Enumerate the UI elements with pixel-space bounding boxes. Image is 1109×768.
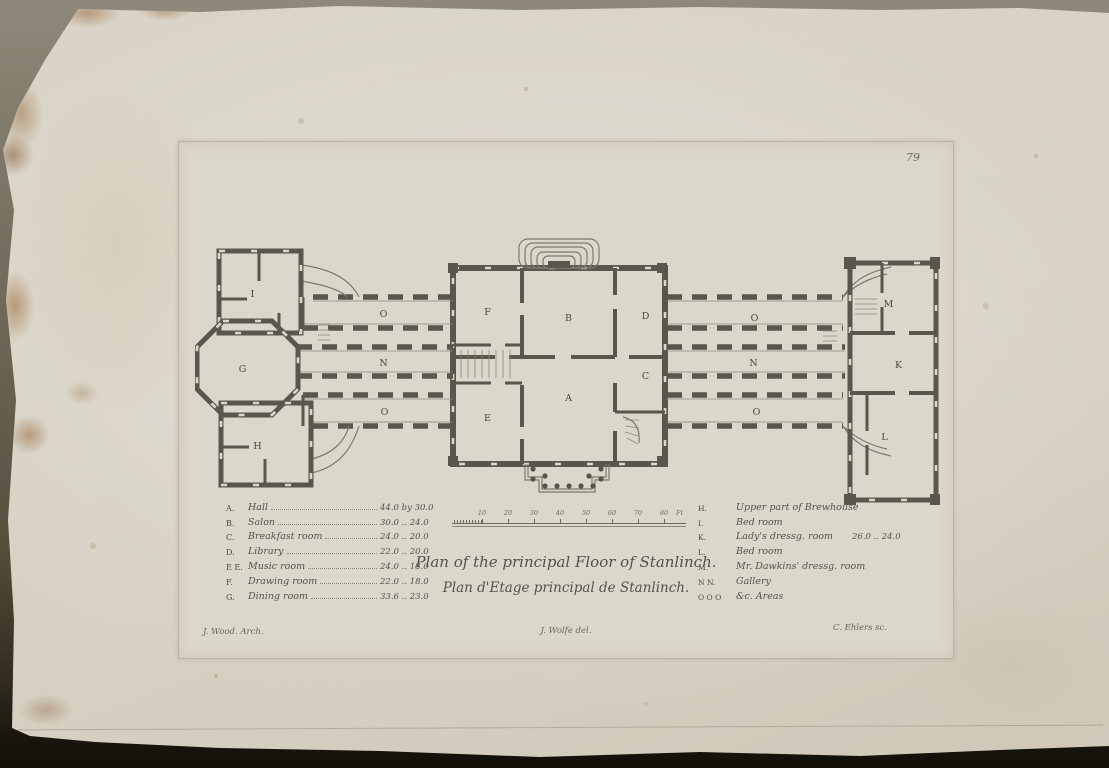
photo-backdrop: 79: [0, 0, 1109, 768]
foxing-stain: [0, 66, 52, 162]
scale-tick-label: 20: [504, 509, 512, 517]
southwest-quadrant-wall: [311, 426, 359, 473]
plate-title-french: Plan d'Etage principal de Stanlinch.: [376, 580, 756, 596]
corner-pier: [657, 263, 667, 273]
legend-name: Lady's dressg. room: [736, 531, 833, 542]
scale-bar: 10 20 30 40 50 60 70 80 Ft: [452, 509, 692, 533]
west-corridor-lines: [297, 301, 453, 422]
fold-crease: [18, 725, 1103, 731]
plate-mark: 79: [178, 141, 954, 659]
corridor-label: O: [753, 407, 762, 418]
dotted-leader: [311, 590, 377, 599]
plate-number: 79: [906, 151, 920, 164]
room-label: G: [239, 364, 248, 375]
foxing-stain: [0, 126, 42, 184]
room-label: K: [895, 360, 903, 371]
legend-row: B.Salon30.0 .. 24.0: [226, 513, 444, 528]
corner-turret: [930, 494, 940, 505]
foxing-stain: [0, 258, 42, 354]
room-label: E: [484, 413, 492, 424]
dotted-leader: [287, 545, 377, 554]
plate-title-english: Plan of the principal Floor of Stanlinch…: [376, 553, 756, 571]
scale-tick-label: 60: [608, 509, 616, 517]
legend-name: Library: [248, 546, 284, 557]
room-label: I: [251, 289, 256, 300]
scale-tick-label: 40: [556, 509, 564, 517]
legend-letter: C.: [226, 533, 248, 542]
foxing-stain: [40, 0, 135, 34]
northwest-quadrant-wall: [301, 265, 359, 297]
room-label: D: [642, 311, 651, 322]
east-block-partitions: [850, 333, 936, 393]
scale-unit: Ft: [676, 509, 683, 517]
architect-signature: J. Wood. Arch.: [203, 627, 264, 637]
dotted-leader: [278, 516, 377, 525]
corner-pier: [657, 456, 667, 466]
legend-letter: E E.: [226, 563, 248, 572]
stair-treads: [625, 420, 639, 444]
foxing-stain: [8, 688, 84, 732]
pavilion-H-partitions: [221, 447, 265, 485]
legend-letter: F.: [226, 578, 248, 587]
legend-row: A.Hall44.0 by 30.0: [226, 498, 444, 513]
legend-letter: G.: [226, 593, 248, 602]
scale-tick-label: 70: [634, 509, 642, 517]
west-corridor-pier-walls: [297, 297, 453, 426]
north-door-landing: [548, 261, 570, 268]
legend-letter: B.: [226, 519, 248, 528]
corner-turret: [930, 257, 940, 269]
legend-name: Drawing room: [248, 576, 317, 587]
legend-name: Dining room: [248, 591, 308, 602]
legend-row: I.Bed room: [698, 513, 916, 528]
corner-pier: [448, 456, 458, 466]
scale-line: [452, 526, 686, 527]
scale-tick-label: 30: [530, 509, 538, 517]
legend-letter: K.: [698, 533, 736, 542]
gallery-label: N: [749, 358, 758, 369]
legend-name: Hall: [248, 502, 268, 513]
foxing-stain: [0, 408, 58, 462]
dotted-leader: [271, 501, 377, 510]
scale-tick-label: 50: [582, 509, 590, 517]
legend-letter: H.: [698, 504, 736, 513]
corner-pier: [448, 263, 458, 273]
dotted-leader: [308, 560, 377, 569]
corner-turret: [844, 257, 856, 269]
legend-dims: 26.0 .. 24.0: [852, 532, 916, 542]
stair-treads: [461, 350, 510, 378]
dotted-leader: [325, 530, 377, 539]
legend-name: Music room: [248, 561, 305, 572]
legend-dims: 44.0 by 30.0: [380, 503, 444, 513]
room-label: L: [881, 432, 888, 443]
legend-row: K.Lady's dressg. room26.0 .. 24.0: [698, 528, 916, 543]
stair-treads: [855, 299, 877, 314]
legend-name: Upper part of Brewhouse: [736, 502, 858, 513]
title-block: Plan of the principal Floor of Stanlinch…: [376, 553, 756, 596]
legend-row: C.Breakfast room24.0 .. 20.0: [226, 528, 444, 543]
floor-plan: I G H O N O F E B D A C O N O M K L: [195, 235, 940, 505]
legend-name: Bed room: [736, 517, 783, 528]
corridor-label: O: [380, 309, 389, 320]
portico-outline: [525, 464, 609, 492]
paper-sheet: 79: [0, 0, 1109, 768]
room-label: C: [642, 371, 650, 382]
delineator-signature: J. Wolfe del.: [466, 626, 666, 636]
room-label: H: [253, 441, 262, 452]
gallery-label: N: [379, 358, 388, 369]
legend-letter: I.: [698, 519, 736, 528]
foxing-stain: [128, 0, 202, 24]
legend-letter: D.: [226, 548, 248, 557]
corridor-label: O: [381, 407, 390, 418]
room-label: B: [565, 313, 573, 324]
stair-treads: [823, 331, 837, 341]
legend-name: Salon: [248, 517, 275, 528]
foxing-specks: [0, 0, 2, 2]
engraver-signature: C. Ehlers sc.: [833, 623, 887, 633]
room-label: M: [884, 299, 895, 310]
stair-curve: [623, 417, 639, 443]
dotted-leader: [320, 575, 377, 584]
room-label: A: [564, 393, 573, 404]
legend-letter: A.: [226, 504, 248, 513]
scale-tick-label: 10: [478, 509, 486, 517]
room-label: F: [484, 307, 492, 318]
foxing-stain: [58, 376, 106, 410]
scale-tick-label: 80: [660, 509, 668, 517]
legend-row: H.Upper part of Brewhouse: [698, 498, 916, 513]
legend-dims: 30.0 .. 24.0: [380, 518, 444, 528]
corridor-label: O: [751, 313, 760, 324]
scale-minor-ticks: [454, 520, 482, 524]
scale-line: [452, 523, 686, 524]
legend-dims: 24.0 .. 20.0: [380, 532, 444, 542]
legend-name: Breakfast room: [248, 531, 322, 542]
